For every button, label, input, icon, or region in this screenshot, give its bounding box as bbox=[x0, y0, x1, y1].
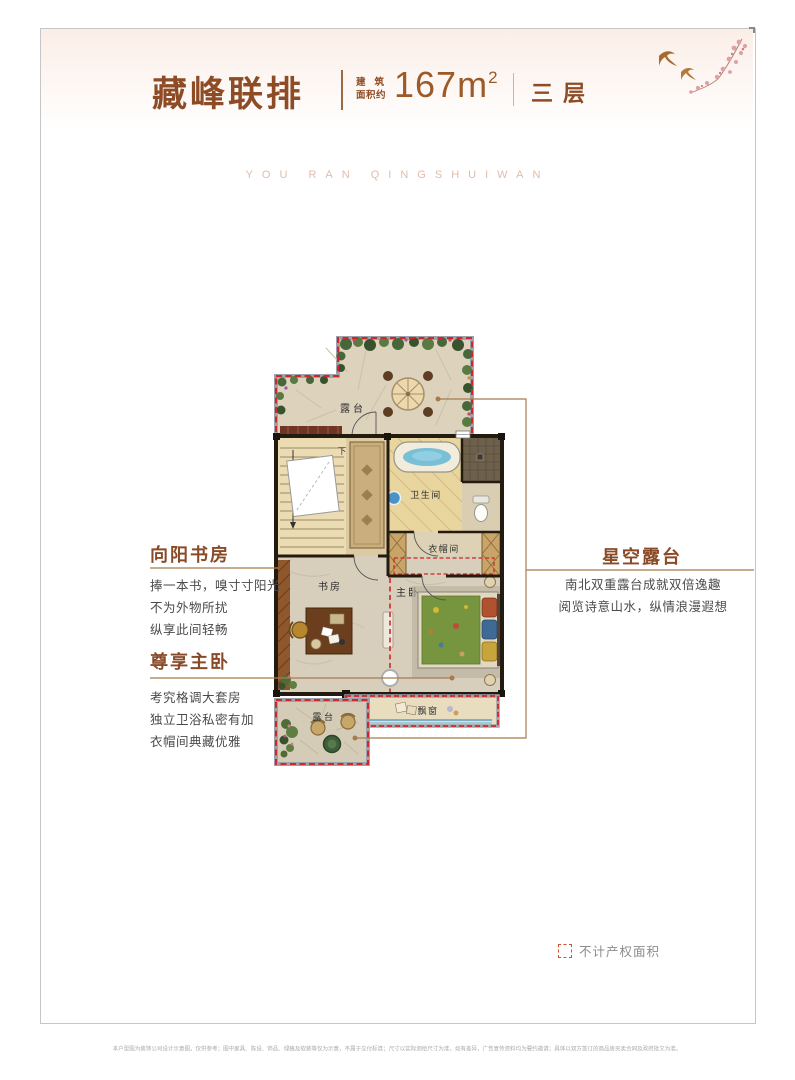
master-annotation-title: 尊享主卧 bbox=[150, 648, 230, 674]
terrace-leader-dot-bottom bbox=[353, 736, 358, 741]
terrace-line-2: 阅览诗意山水，纵情浪漫遐想 bbox=[527, 596, 759, 618]
legend-label: 不计产权面积 bbox=[579, 941, 660, 960]
terrace-leader-line bbox=[355, 399, 526, 738]
master-annotation-body: 考究格调大套房 独立卫浴私密有加 衣帽间典藏优雅 bbox=[150, 687, 254, 753]
brochure-page: 藏峰联排 建筑 面积约 167m2 三层 YOU RAN QINGSHUIWAN bbox=[0, 0, 795, 1080]
study-line-3: 纵享此间轻畅 bbox=[150, 619, 280, 641]
master-leader-dot bbox=[450, 676, 455, 681]
disclaimer-text: 本户型图为装饰公司设计示意图，仅供参考；图中家具、陈设、饰品、绿植及软装等仅为示… bbox=[69, 1044, 726, 1052]
study-annotation-title: 向阳书房 bbox=[150, 541, 230, 567]
master-line-3: 衣帽间典藏优雅 bbox=[150, 731, 254, 753]
dashed-area-icon bbox=[558, 944, 572, 958]
terrace-annotation-title: 星空露台 bbox=[527, 543, 757, 569]
study-line-2: 不为外物所扰 bbox=[150, 597, 280, 619]
master-line-2: 独立卫浴私密有加 bbox=[150, 709, 254, 731]
study-annotation-body: 捧一本书，嗅寸寸阳光 不为外物所扰 纵享此间轻畅 bbox=[150, 575, 280, 641]
master-line-1: 考究格调大套房 bbox=[150, 687, 254, 709]
leader-lines bbox=[0, 0, 795, 1080]
terrace-line-1: 南北双重露台成就双倍逸趣 bbox=[527, 574, 759, 596]
study-line-1: 捧一本书，嗅寸寸阳光 bbox=[150, 575, 280, 597]
terrace-annotation-body: 南北双重露台成就双倍逸趣 阅览诗意山水，纵情浪漫遐想 bbox=[527, 574, 759, 618]
legend: 不计产权面积 bbox=[558, 941, 660, 960]
terrace-leader-dot-top bbox=[436, 397, 441, 402]
